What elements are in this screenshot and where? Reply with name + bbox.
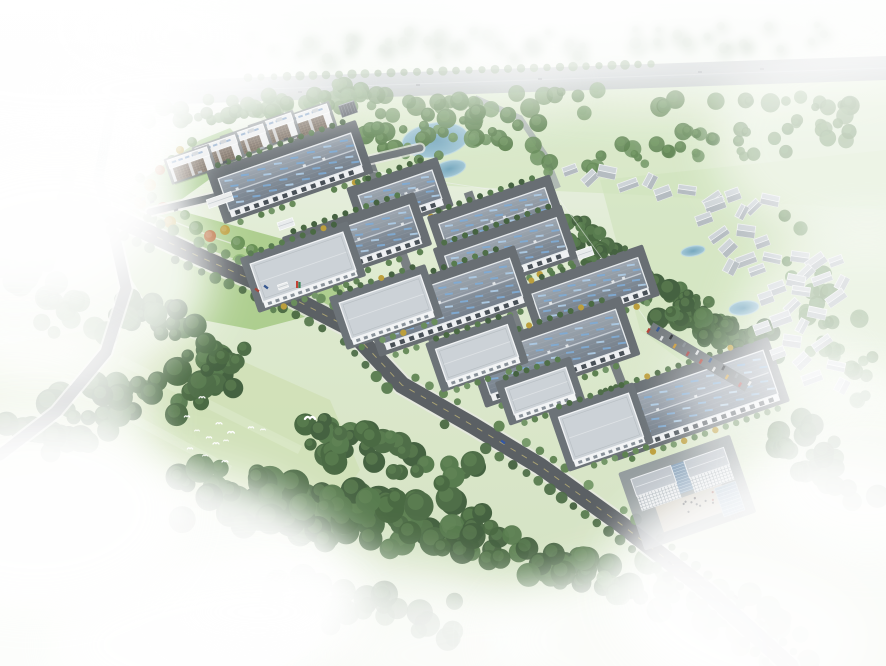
layer-fog (0, 0, 886, 666)
aerial-industrial-park-rendering (0, 0, 886, 666)
scene-svg (0, 0, 886, 666)
atmosphere-tint (0, 0, 886, 666)
